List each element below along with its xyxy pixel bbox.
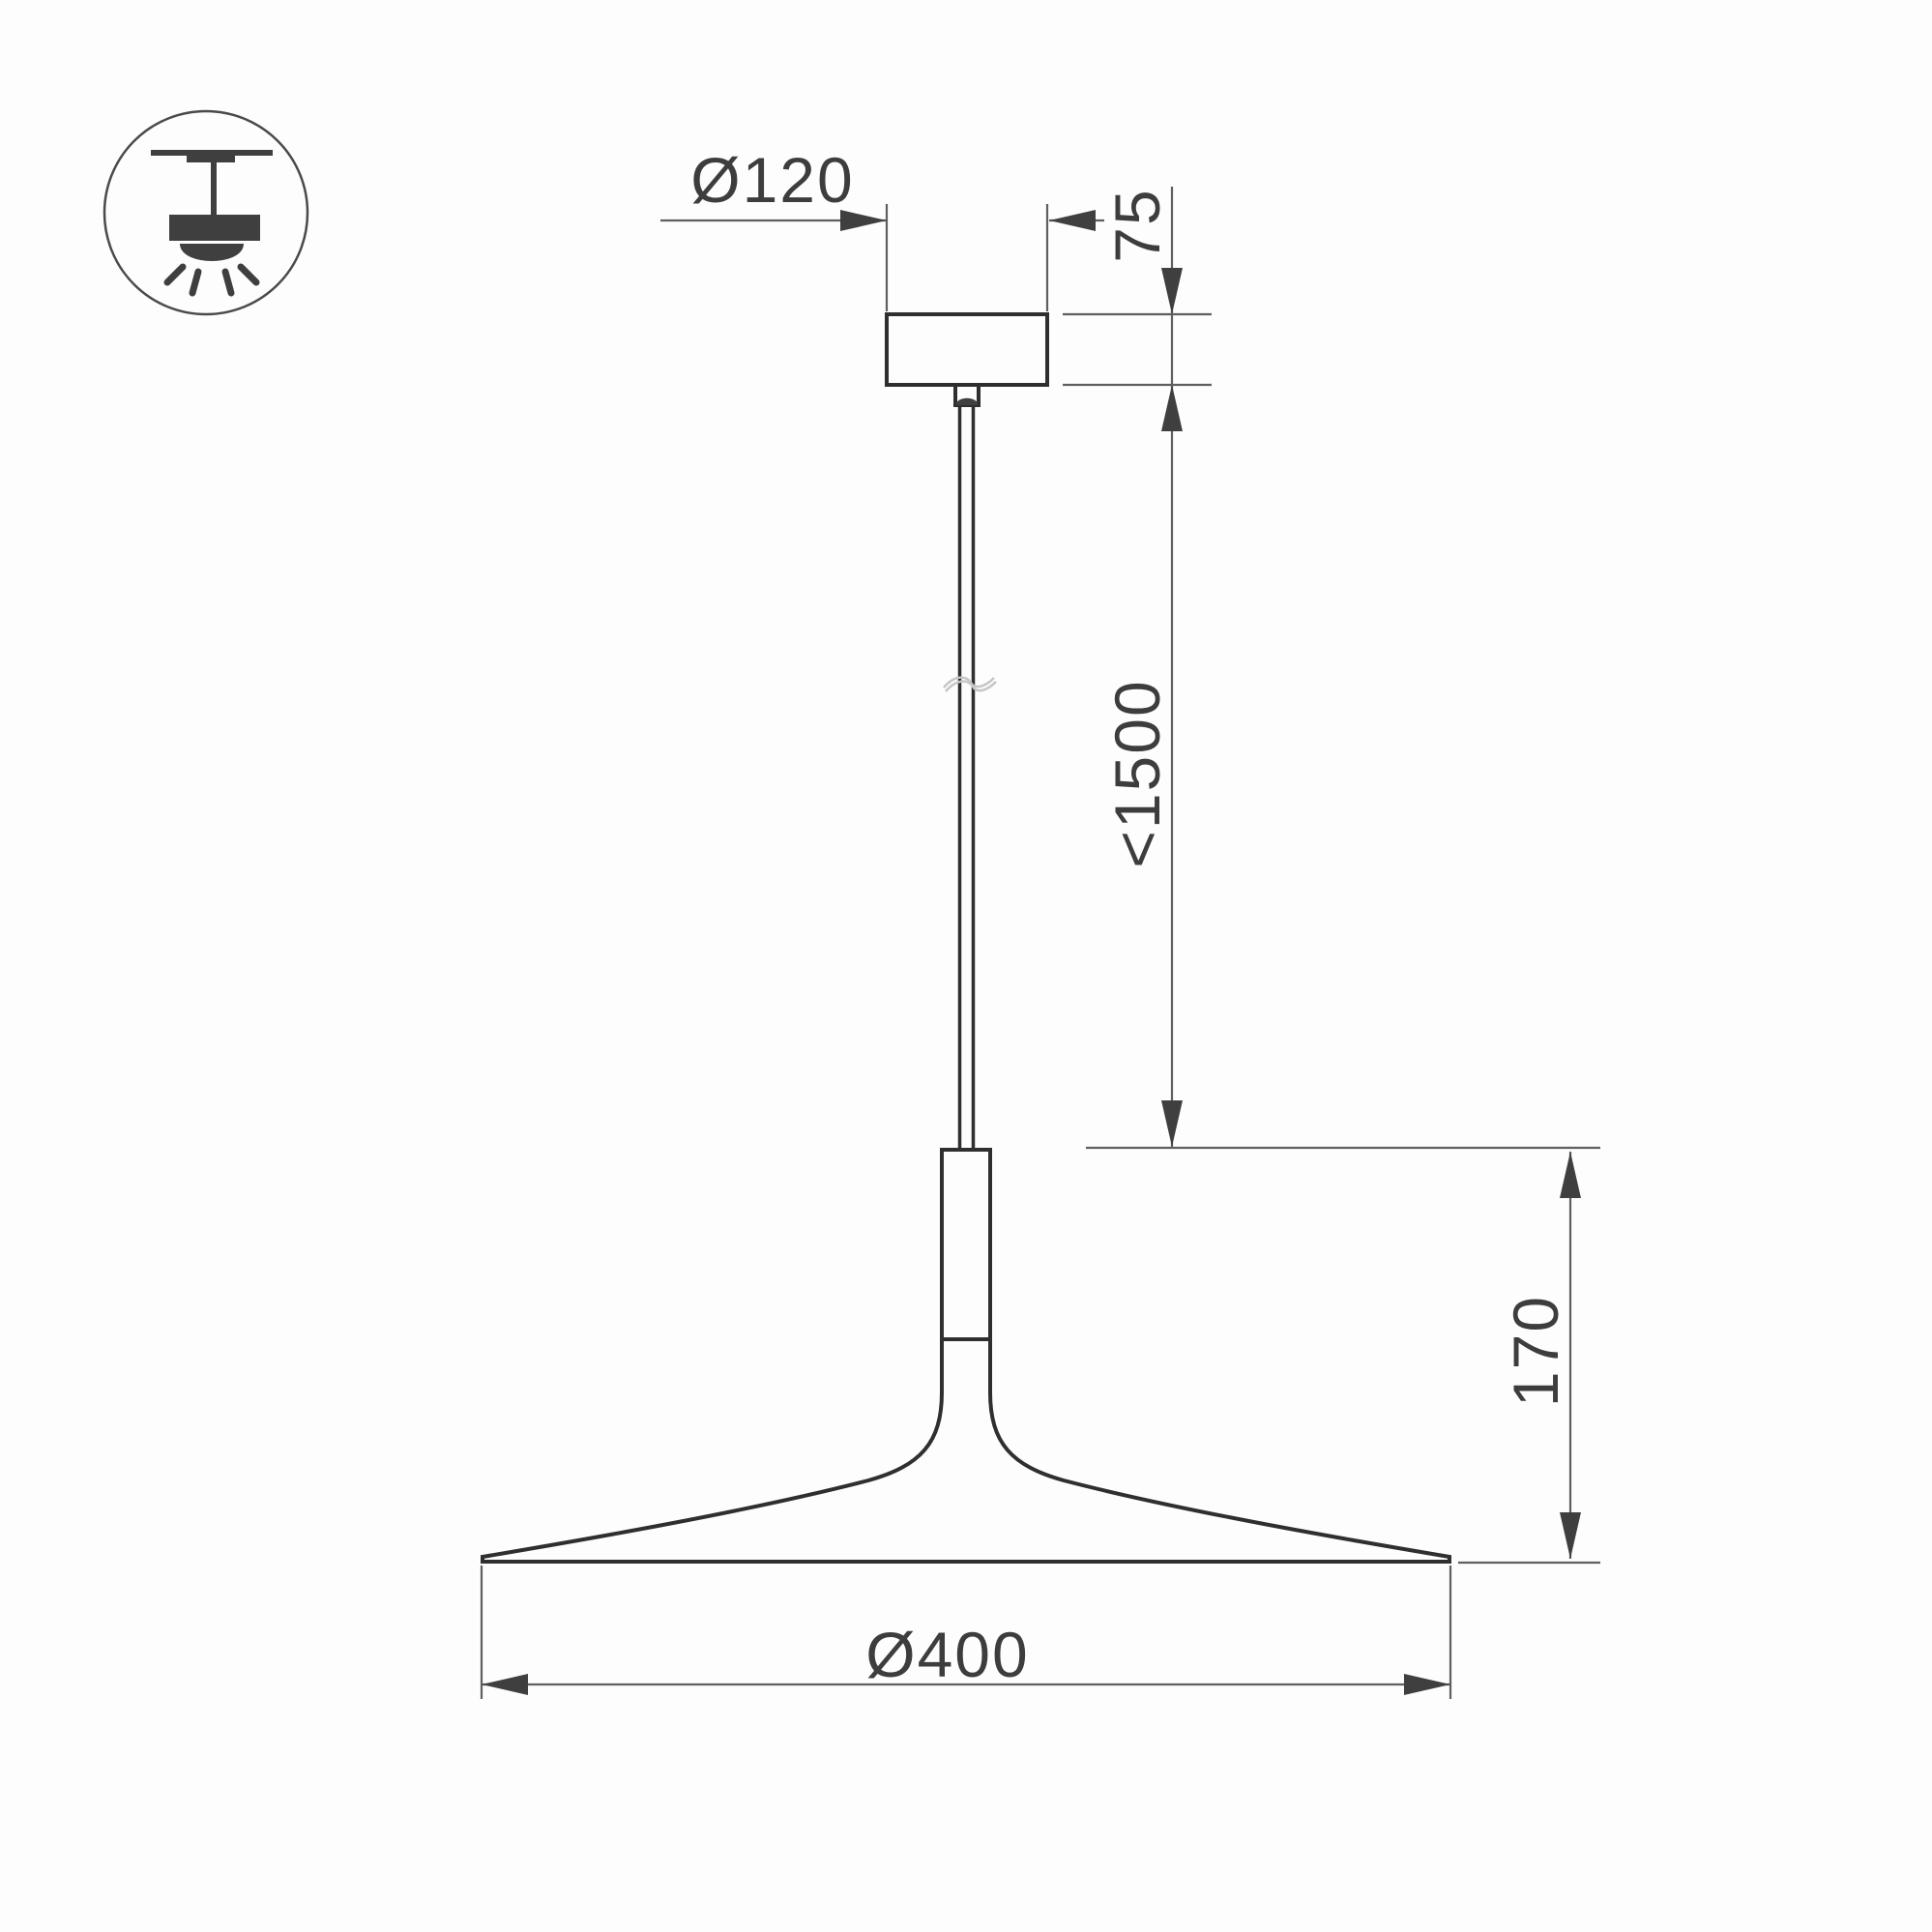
icon-circle-border	[104, 111, 307, 314]
arrow-left-icon	[1049, 210, 1096, 231]
dimension-canopy-height-and-suspension: 75 <1500	[1101, 187, 1183, 1147]
arrow-down-icon	[1560, 1512, 1581, 1559]
arrow-up-icon	[1560, 1152, 1581, 1198]
icon-lamp-body	[169, 215, 260, 241]
icon-light-dome	[180, 244, 244, 261]
canopy	[887, 314, 1047, 385]
lamp-outline	[483, 314, 1449, 1562]
shade-height-label: 170	[1500, 1295, 1571, 1407]
dimension-shade-height: 170	[1500, 1152, 1581, 1559]
suspension-cable	[960, 405, 974, 1148]
pendant-lamp-drawing: Ø120 75 <1500 170 Ø400	[0, 0, 1932, 1932]
canopy-height-label: 75	[1101, 188, 1173, 262]
dimension-canopy-diameter: Ø120	[660, 144, 1104, 231]
arrow-left-icon	[482, 1674, 528, 1695]
suspension-length-label: <1500	[1101, 679, 1173, 867]
technical-drawing-sheet: Ø120 75 <1500 170 Ø400	[0, 0, 1932, 1932]
shade-diameter-label: Ø400	[865, 1619, 1029, 1690]
icon-mount-plate	[187, 156, 235, 162]
shade-profile	[483, 1150, 1449, 1562]
arrow-down-icon	[1161, 1100, 1183, 1147]
ceiling-pendant-light-icon	[104, 111, 307, 314]
icon-light-rays	[167, 267, 256, 293]
arrow-down-icon	[1161, 268, 1183, 314]
canopy-diameter-label: Ø120	[690, 144, 854, 216]
icon-ceiling-line	[151, 150, 273, 156]
icon-suspension-rod	[211, 162, 217, 217]
arrow-up-icon	[1161, 385, 1183, 431]
arrow-right-icon	[1404, 1674, 1450, 1695]
dimension-shade-diameter: Ø400	[482, 1619, 1450, 1695]
cable-break-mark	[944, 678, 996, 691]
